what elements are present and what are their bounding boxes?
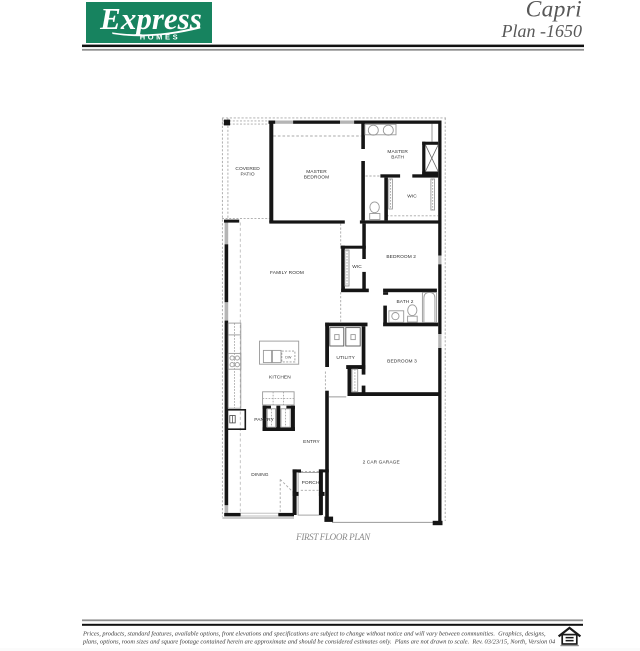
svg-text:MASTERBATH: MASTERBATH bbox=[387, 149, 408, 160]
svg-text:HOMES: HOMES bbox=[140, 32, 181, 41]
svg-text:plans, options, room sizes and: plans, options, room sizes and square fo… bbox=[82, 639, 556, 646]
svg-text:WIC: WIC bbox=[407, 193, 417, 199]
svg-text:BEDROOM 3: BEDROOM 3 bbox=[387, 359, 417, 365]
svg-text:Plan -1650: Plan -1650 bbox=[501, 21, 583, 41]
svg-text:BATH 2: BATH 2 bbox=[396, 299, 413, 305]
svg-text:BEDROOM 2: BEDROOM 2 bbox=[386, 254, 416, 260]
svg-text:FIRST FLOOR PLAN: FIRST FLOOR PLAN bbox=[295, 532, 371, 542]
svg-text:UTILITY: UTILITY bbox=[336, 355, 355, 361]
svg-text:ENTRY: ENTRY bbox=[303, 439, 320, 445]
svg-text:Prices, products, standard fea: Prices, products, standard features, ava… bbox=[82, 630, 546, 637]
svg-text:DW: DW bbox=[285, 356, 292, 360]
svg-text:PORCH: PORCH bbox=[302, 480, 320, 486]
svg-text:COVEREDPATIO: COVEREDPATIO bbox=[235, 166, 260, 177]
svg-text:Capri: Capri bbox=[526, 0, 582, 23]
svg-text:WIC: WIC bbox=[352, 264, 362, 270]
svg-text:PANTRY: PANTRY bbox=[254, 417, 274, 423]
svg-text:FAMILY ROOM: FAMILY ROOM bbox=[270, 270, 304, 276]
svg-text:2 CAR GARAGE: 2 CAR GARAGE bbox=[363, 460, 400, 466]
svg-text:DINING: DINING bbox=[251, 472, 269, 478]
svg-text:MASTERBEDROOM: MASTERBEDROOM bbox=[304, 169, 330, 180]
svg-text:KITCHEN: KITCHEN bbox=[269, 375, 291, 381]
